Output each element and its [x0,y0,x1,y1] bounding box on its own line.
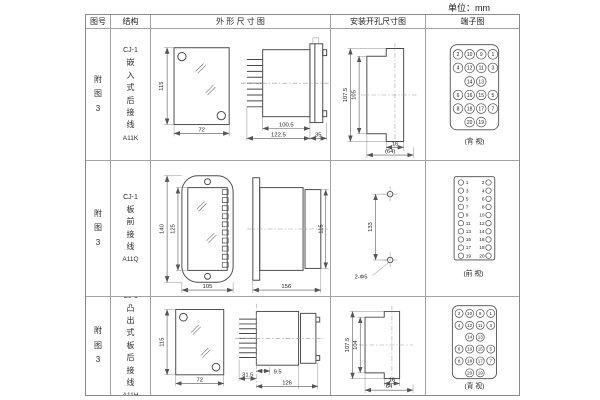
svg-text:4: 4 [456,65,459,71]
model-code: A11Q [122,256,138,263]
svg-text:2: 2 [457,311,460,316]
dim-length: 126 [282,380,292,386]
spec-table: 图号 结构 外 形 尺 寸 图 安装开孔尺寸图 端子图 附图3 CJ-1 嵌入式… [85,14,520,396]
dim-outer-width: 64 [386,384,393,390]
view-caption: (背 视) [464,381,484,390]
svg-text:9: 9 [478,311,481,316]
dim-inner-height: 125 [170,223,176,234]
mounting-hole-drawing-front-wired: 133 2-Φ5 [332,162,424,296]
dim-flange: 35 [315,132,322,138]
spec-sheet-page: { "unit_label": "单位：mm", "header": { "fi… [0,0,600,400]
svg-text:12: 12 [466,65,472,71]
model-code: A11K [123,135,138,142]
outline-drawing-embedded-relay: 115 72 100.5 122.5 35 [152,30,330,160]
header-structure: 结构 [111,15,151,29]
model-code: A11H [123,392,139,395]
terminal-numbers: 12 34 56 78 910 1112 1314 1516 1718 1920 [465,180,484,259]
dim-outer-height: 140 [159,223,165,234]
dim-height: 115 [159,80,165,90]
svg-text:7: 7 [465,204,468,210]
svg-text:16: 16 [466,92,472,98]
model-label: CJ-1 [123,297,138,300]
dim-body-depth: 100.5 [278,122,293,128]
svg-text:19: 19 [465,253,471,259]
terminal-diagram-rear-row1: 21091 412113 1413 616155 818177 2019 (背 … [427,30,519,160]
svg-text:3: 3 [465,188,468,194]
svg-text:12: 12 [467,323,472,328]
outline-cell-row2: 140 125 105 156 115 [151,161,331,297]
outline-cell-row1: 115 72 100.5 122.5 35 [151,29,331,161]
svg-text:14: 14 [467,335,472,340]
svg-text:6: 6 [457,347,460,352]
dim-outer-height: 107.5 [345,338,351,352]
svg-text:1: 1 [465,180,468,186]
svg-text:19: 19 [477,370,482,375]
svg-text:15: 15 [477,347,482,352]
header-mounting: 安装开孔尺寸图 [331,15,426,29]
dim-offset: 9.5 [273,369,281,375]
svg-text:18: 18 [467,359,472,364]
svg-text:9: 9 [479,52,482,58]
dim-outer-width: (64) [385,149,395,155]
svg-text:11: 11 [465,220,470,226]
mounting-holes [382,186,397,267]
header-outline: 外 形 尺 寸 图 [151,15,331,29]
svg-text:17: 17 [478,106,484,112]
svg-text:13: 13 [477,335,482,340]
svg-text:1: 1 [491,52,494,58]
svg-text:6: 6 [481,196,484,202]
svg-text:12: 12 [479,220,485,226]
svg-text:2: 2 [481,180,484,186]
svg-text:13: 13 [465,228,471,234]
terminal-numbers: 21091 412113 1413 616155 818177 2019 [457,311,492,376]
outline-drawing-projecting: 115 72 31.5 9.5 126 [152,298,330,394]
svg-text:2: 2 [456,52,459,58]
svg-text:17: 17 [465,245,471,251]
fig-no-text: 附图3 [93,207,104,250]
svg-text:14: 14 [479,228,485,234]
svg-text:11: 11 [478,65,483,71]
svg-text:19: 19 [478,119,484,125]
mounting-hole-drawing-embedded: 107.5 105 16 (64) [332,30,424,160]
terminal-cell-row1: 21091 412113 1413 616155 818177 2019 (背 … [426,29,519,161]
structure-row2: CJ-1 板前接线 A11Q [111,161,151,297]
svg-text:6: 6 [456,92,459,98]
dim-height: 115 [159,338,165,347]
dim-width: 72 [198,127,205,133]
svg-text:18: 18 [466,106,472,112]
svg-text:4: 4 [481,188,484,194]
outline-cell-row3: 115 72 31.5 9.5 126 [151,297,331,395]
fig-no-text: 附图3 [93,73,104,116]
dim-width: 105 [202,284,213,290]
svg-text:20: 20 [479,253,485,259]
svg-text:10: 10 [466,52,472,58]
view-caption: (前 视) [463,268,483,277]
svg-text:15: 15 [465,237,471,243]
header-terminal: 端子图 [426,15,519,29]
model-label: CJ-1 [123,47,138,54]
structure-desc: 凸出式板后接线 [126,303,136,390]
fig-no-text: 附图3 [93,324,104,367]
svg-text:9: 9 [465,212,468,218]
dim-inner-height: 105 [352,90,358,100]
terminal-cell-row2: 12 34 56 78 910 1112 1314 1516 1718 1920… [426,161,519,297]
svg-text:5: 5 [465,196,468,202]
svg-text:7: 7 [489,359,492,364]
front-view-shape [181,175,232,281]
svg-text:4: 4 [457,323,460,328]
svg-text:11: 11 [477,323,482,328]
view-caption: (背 视) [464,136,484,145]
dim-length: 156 [281,284,292,290]
dim-inner-width: 16 [392,141,398,147]
svg-text:14: 14 [466,79,472,85]
dim-hole-spacing: 133 [368,222,374,232]
terminal-diagram-rear-row3: 21091 412113 1413 616155 818177 2019 (背 … [427,298,519,394]
front-view-shape [174,47,229,124]
svg-text:1: 1 [489,311,492,316]
svg-text:10: 10 [479,212,485,218]
fig-no-row2: 附图3 [86,161,111,297]
svg-text:16: 16 [479,237,485,243]
header-fig-no: 图号 [86,15,111,29]
terminal-numbers: 21091 412113 1413 616155 818177 2019 [456,52,494,126]
fig-no-row1: 附图3 [86,29,111,161]
unit-label: 单位：mm [448,1,490,14]
svg-text:17: 17 [477,359,482,364]
svg-text:15: 15 [478,92,484,98]
terminal-diagram-front-row2: 12 34 56 78 910 1112 1314 1516 1718 1920… [427,162,519,296]
svg-text:13: 13 [478,79,484,85]
dim-total-depth: 122.5 [271,132,286,138]
mounting-hole-drawing-projecting: 107.5 104 16 64 [332,298,424,394]
terminal-circles [458,179,491,258]
hole-spec-label: 2-Φ5 [355,274,368,280]
svg-text:8: 8 [481,204,484,210]
structure-row1: CJ-1 嵌入式后接线 A11K [111,29,151,161]
structure-row3: CJ-1 凸出式板后接线 A11H [111,297,151,395]
svg-text:20: 20 [467,370,472,375]
terminal-cell-row3: 21091 412113 1413 616155 818177 2019 (背 … [426,297,519,395]
svg-text:16: 16 [467,347,472,352]
dim-inner-width: 16 [389,378,395,384]
svg-text:3: 3 [491,65,494,71]
dim-width: 72 [196,378,202,384]
terminal-circles [455,309,495,377]
outline-drawing-front-wired: 140 125 105 156 115 [152,162,330,296]
front-view-shape [175,310,223,375]
mounting-cell-row1: 107.5 105 16 (64) [331,29,426,161]
svg-text:20: 20 [466,119,472,125]
model-label: CJ-1 [123,194,138,201]
svg-text:5: 5 [489,347,492,352]
dim-pin-depth: 31.5 [242,373,253,379]
svg-text:8: 8 [456,106,459,112]
fig-no-row3: 附图3 [86,297,111,395]
structure-desc: 嵌入式后接线 [126,57,136,131]
svg-text:10: 10 [467,311,472,316]
svg-text:18: 18 [479,245,485,251]
terminal-circles [453,49,498,126]
side-view-shape [246,37,326,122]
mounting-cell-row3: 107.5 104 16 64 [331,297,426,395]
svg-text:3: 3 [489,323,492,328]
mounting-cell-row2: 133 2-Φ5 [331,161,426,297]
dim-side-height: 115 [318,223,324,233]
svg-text:5: 5 [491,92,494,98]
dim-outer-height: 107.5 [343,87,349,102]
structure-desc: 板前接线 [126,204,136,254]
svg-text:8: 8 [457,359,460,364]
dim-inner-height: 104 [353,339,359,349]
svg-text:7: 7 [491,106,494,112]
